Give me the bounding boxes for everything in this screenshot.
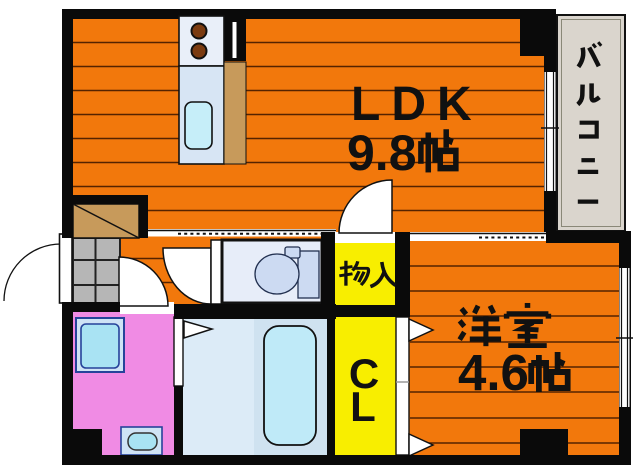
svg-text:9.8: 9.8 — [347, 125, 417, 181]
svg-text:4.6: 4.6 — [458, 344, 529, 401]
svg-text:L: L — [350, 383, 376, 430]
svg-text:LDK: LDK — [351, 78, 483, 131]
